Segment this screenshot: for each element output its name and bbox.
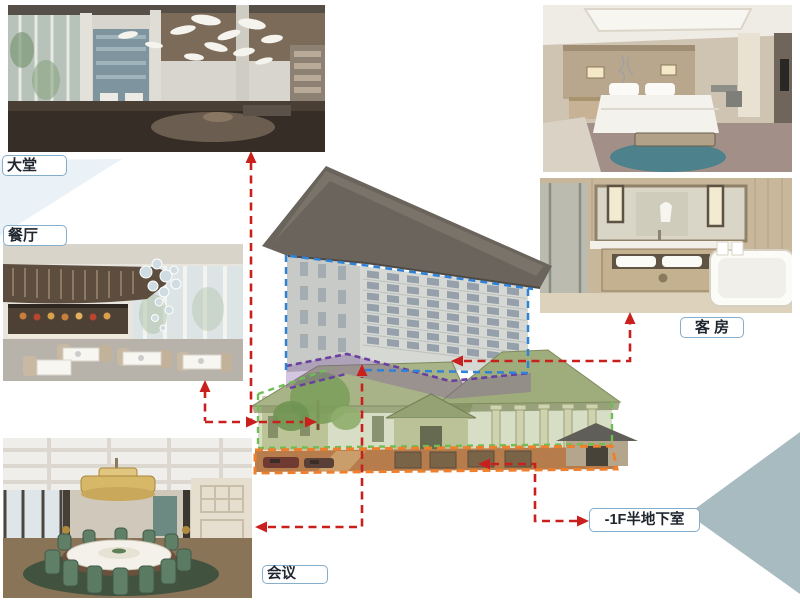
arrow-line-basement: [491, 464, 577, 521]
watermark-triangle-right: [688, 432, 800, 594]
tower-roof: [262, 166, 552, 288]
arrowhead-left-basement: [478, 459, 490, 470]
arrowhead-right-mid: [246, 417, 258, 428]
arrowhead-left-meeting: [255, 522, 267, 533]
label-meeting: 会议: [262, 565, 328, 584]
label-restaurant-text: 餐厅: [8, 228, 38, 243]
bathroom-image: [540, 178, 792, 313]
photo-guest-room-rendering: [543, 5, 792, 172]
basement-zone-outline: [255, 446, 617, 473]
arrowhead-right-podium: [305, 417, 317, 428]
podium-zone-outline: [258, 368, 612, 449]
podium-public-level: [252, 350, 620, 450]
arrowhead-up-lobby: [246, 151, 257, 163]
label-basement: -1F半地下室: [589, 508, 700, 532]
arrow-line-meeting: [268, 377, 362, 527]
tower-guest-room-block: [287, 252, 528, 372]
label-basement-text: -1F半地下室: [605, 513, 685, 528]
photo-bathroom-rendering: [540, 178, 792, 313]
meeting-room-image: [3, 438, 252, 598]
arrowhead-left-tower: [451, 356, 463, 367]
basement-level: [255, 447, 617, 472]
label-guest-room: 客 房: [680, 317, 744, 338]
label-guest-room-text: 客 房: [695, 320, 729, 335]
restaurant-image: [3, 244, 243, 381]
bathtub: [710, 242, 792, 306]
trees: [273, 372, 361, 431]
meeting-level-zone: [286, 354, 531, 399]
gatehouse-pavilion: [556, 423, 638, 466]
label-meeting-text: 会议: [267, 567, 296, 582]
arrowhead-up-meeting-zone: [357, 364, 368, 376]
lobby-image: [8, 5, 325, 152]
tower-zone-outline: [286, 255, 533, 373]
guest-room-image: [543, 5, 792, 172]
label-restaurant: 餐厅: [3, 225, 67, 246]
photo-meeting-room-rendering: [3, 438, 252, 598]
arrowhead-up-bathroom: [625, 312, 636, 324]
photo-restaurant-rendering: [3, 244, 243, 381]
arrowhead-up-restaurant: [200, 380, 211, 392]
hotel-program-diagram-slide: 大堂 餐厅 会议 客 房 -1F半地下室: [0, 0, 800, 600]
arrowhead-right-basement-label: [577, 516, 589, 527]
label-lobby-text: 大堂: [7, 158, 37, 173]
arrow-line-guestroom: [464, 324, 630, 361]
photo-lobby-rendering: [8, 5, 325, 152]
label-lobby: 大堂: [2, 155, 67, 176]
